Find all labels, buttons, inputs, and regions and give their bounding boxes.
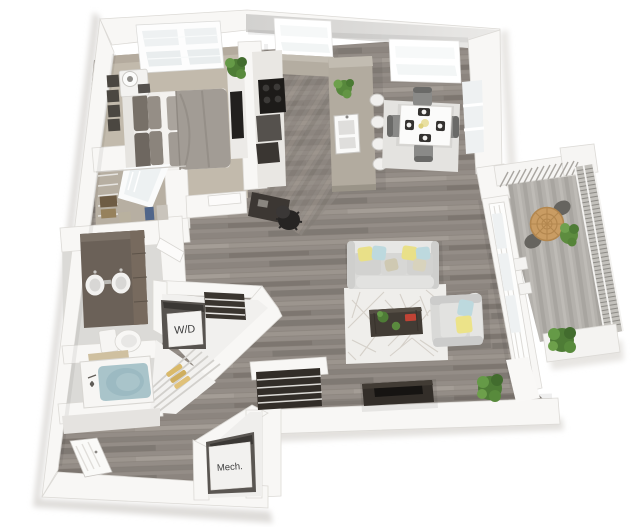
svg-text:Mech.: Mech. — [217, 461, 244, 474]
svg-text:W/D: W/D — [174, 323, 196, 336]
